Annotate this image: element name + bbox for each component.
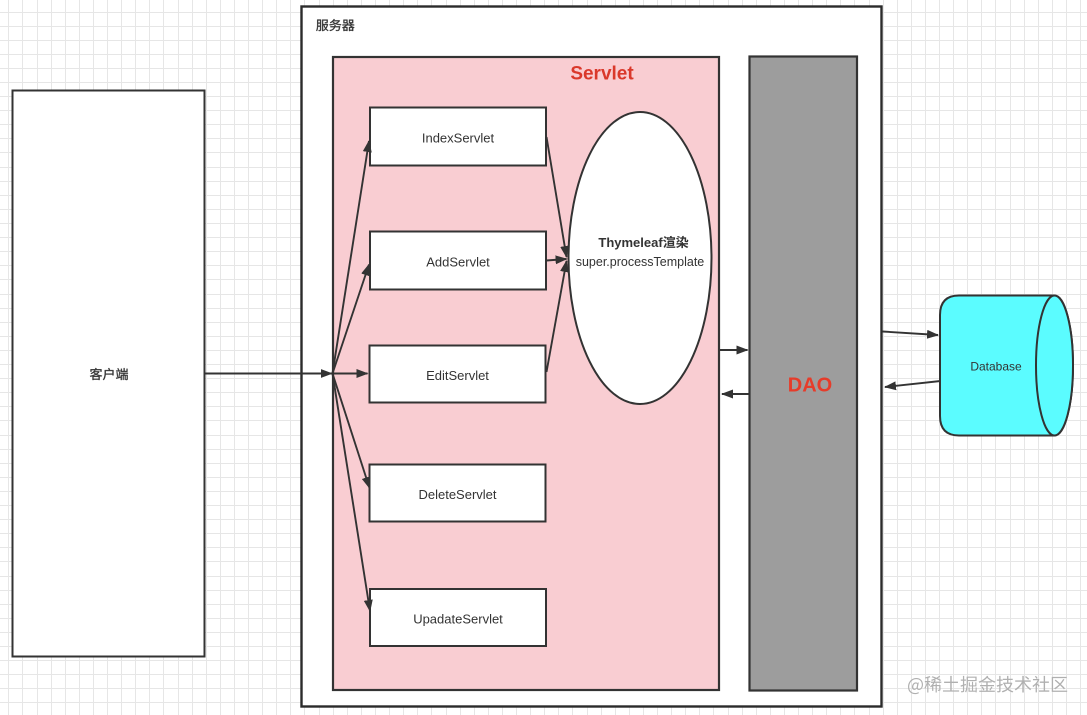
svg-text:IndexServlet: IndexServlet: [422, 131, 495, 146]
svg-text:Thymeleaf: Thymeleaf: [598, 235, 663, 250]
svg-text:super.processTemplate: super.processTemplate: [576, 255, 705, 269]
svg-text:DAO: DAO: [788, 375, 832, 397]
svg-text:AddServlet: AddServlet: [426, 255, 490, 270]
svg-text:EditServlet: EditServlet: [426, 368, 489, 383]
svg-text:Database: Database: [970, 360, 1022, 374]
svg-text:Servlet: Servlet: [570, 64, 634, 85]
svg-text:UpadateServlet: UpadateServlet: [413, 612, 503, 627]
svg-text:DeleteServlet: DeleteServlet: [418, 487, 496, 502]
